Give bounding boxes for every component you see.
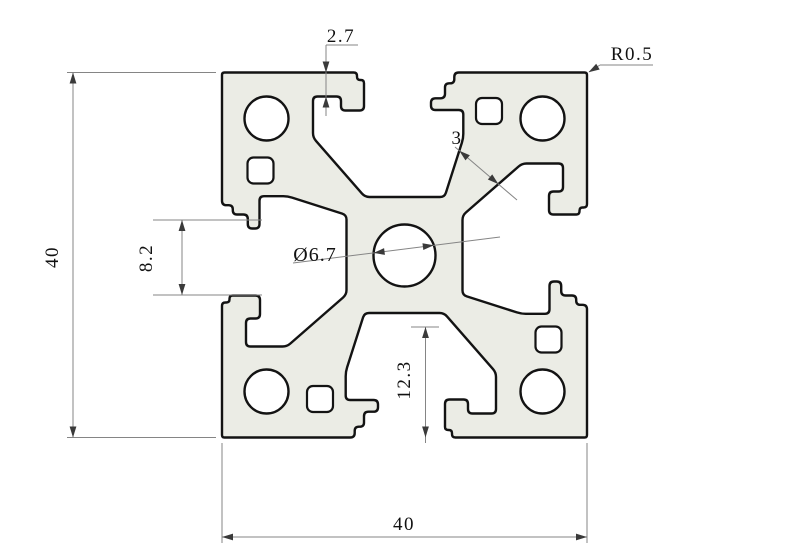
- dim-40w-arrow-right: [576, 534, 587, 541]
- dim-label-center-hole: Ø6.7: [293, 244, 336, 266]
- dim-40h-arrow-down: [70, 427, 77, 438]
- block-pocket: [536, 327, 562, 353]
- dim-label-lip-depth: 2.7: [327, 26, 355, 47]
- dim-2.7-arrow-down: [323, 62, 330, 73]
- dim-label-slot-opening: 8.2: [136, 244, 157, 272]
- dim-label-corner-radius: R0.5: [611, 44, 653, 65]
- corner-hole: [521, 370, 565, 414]
- dim-8.2-arrow-up: [179, 220, 186, 231]
- block-pocket: [307, 386, 333, 412]
- dim-8.2-arrow-down: [179, 284, 186, 295]
- dim-12.3-arrow-up: [422, 327, 429, 338]
- dim-label-slot-depth: 12.3: [394, 360, 415, 399]
- block-pocket: [476, 98, 502, 124]
- block-pocket: [248, 158, 274, 184]
- dim-2.7-arrow-up: [323, 97, 330, 108]
- dim-label-overall-width: 40: [393, 514, 415, 535]
- dim-12.3-arrow-down: [422, 427, 429, 438]
- center-hole: [374, 225, 436, 287]
- dim-label-overall-height: 40: [42, 246, 63, 268]
- corner-hole: [521, 97, 565, 141]
- dim-label-wall-thickness: 3: [452, 128, 463, 149]
- corner-hole: [245, 97, 289, 141]
- dim-r05-arrow: [589, 64, 600, 73]
- drawing-page: 2.7 R0.5 3 Ø6.7 8.2 12.3 40 40: [0, 0, 804, 557]
- corner-hole: [245, 370, 289, 414]
- drawing-canvas: 2.7 R0.5 3 Ø6.7 8.2 12.3 40 40: [0, 0, 804, 557]
- dim-40h-arrow-up: [70, 73, 77, 84]
- dim-40w-arrow-left: [222, 534, 233, 541]
